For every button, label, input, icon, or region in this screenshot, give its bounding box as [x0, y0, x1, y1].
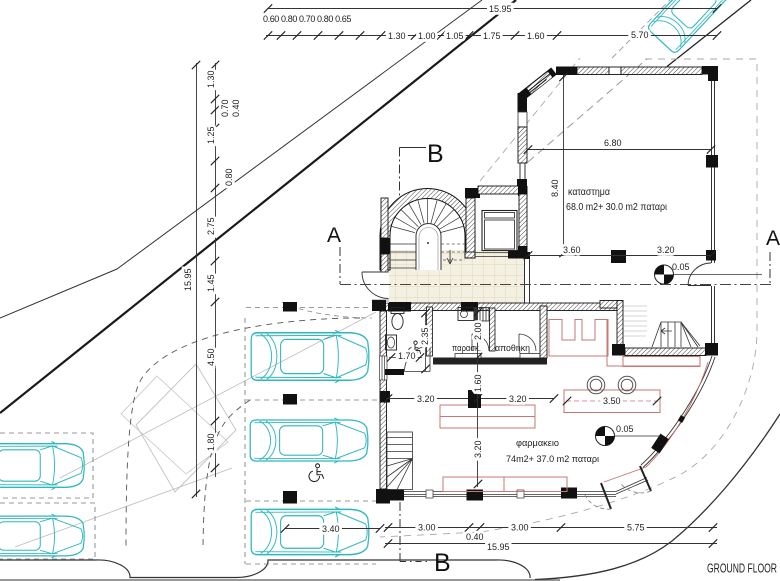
svg-text:3.20: 3.20: [509, 394, 527, 404]
svg-text:1.05: 1.05: [446, 31, 464, 41]
svg-text:1.70: 1.70: [398, 351, 416, 361]
svg-text:3.20: 3.20: [657, 245, 675, 255]
svg-text:1.75: 1.75: [483, 31, 501, 41]
svg-text:καταστημα: καταστημα: [568, 187, 610, 198]
svg-text:2.75: 2.75: [206, 217, 216, 235]
svg-text:3.60: 3.60: [563, 245, 581, 255]
svg-text:5.70: 5.70: [631, 30, 649, 40]
svg-text:παρασκ.: παρασκ.: [452, 343, 481, 354]
svg-text:1.25: 1.25: [206, 126, 216, 144]
svg-text:0.05: 0.05: [672, 262, 690, 272]
svg-text:0.70: 0.70: [220, 99, 230, 117]
svg-text:A: A: [766, 227, 780, 250]
svg-text:0.80: 0.80: [224, 168, 234, 186]
svg-text:3.50: 3.50: [603, 396, 621, 406]
svg-text:1.30: 1.30: [388, 31, 406, 41]
svg-text:4.50: 4.50: [206, 348, 216, 366]
svg-text:0.40: 0.40: [231, 99, 241, 117]
svg-text:1.45: 1.45: [206, 274, 216, 292]
svg-text:0.05: 0.05: [616, 424, 634, 434]
svg-text:1.00: 1.00: [418, 31, 436, 41]
svg-text:15.95: 15.95: [183, 268, 193, 291]
svg-text:A: A: [327, 224, 341, 247]
svg-text:B: B: [434, 549, 451, 577]
svg-text:3.40: 3.40: [322, 524, 340, 534]
svg-text:0.40: 0.40: [466, 532, 484, 542]
svg-text:1.80: 1.80: [206, 433, 216, 451]
svg-text:74m2+ 37.0 m2 παταρι: 74m2+ 37.0 m2 παταρι: [506, 454, 599, 465]
svg-text:15.95: 15.95: [489, 4, 512, 14]
svg-text:φαρμακειο: φαρμακειο: [516, 438, 559, 449]
svg-text:3.00: 3.00: [418, 523, 436, 533]
svg-text:2.00: 2.00: [473, 322, 483, 340]
svg-text:68.0 m2+ 30.0 m2 παταρι: 68.0 m2+ 30.0 m2 παταρι: [566, 202, 667, 213]
svg-text:GROUND FLOOR: GROUND FLOOR: [707, 562, 777, 576]
svg-text:2.35: 2.35: [420, 327, 430, 345]
svg-text:5.75: 5.75: [627, 523, 645, 533]
svg-text:1.60: 1.60: [473, 374, 483, 392]
svg-text:1.30: 1.30: [206, 70, 216, 88]
svg-text:0.60 0.80 0.70 0.80 0.65: 0.60 0.80 0.70 0.80 0.65: [263, 14, 351, 24]
svg-text:3.00: 3.00: [511, 523, 529, 533]
svg-text:B: B: [427, 140, 444, 168]
svg-text:3.20: 3.20: [417, 394, 435, 404]
svg-text:8.40: 8.40: [550, 179, 560, 197]
svg-text:1.60: 1.60: [527, 31, 545, 41]
svg-text:3.20: 3.20: [473, 440, 483, 458]
svg-text:15.95: 15.95: [487, 542, 510, 552]
svg-text:αποθηκη: αποθηκη: [495, 343, 530, 354]
svg-text:6.80: 6.80: [604, 138, 622, 148]
